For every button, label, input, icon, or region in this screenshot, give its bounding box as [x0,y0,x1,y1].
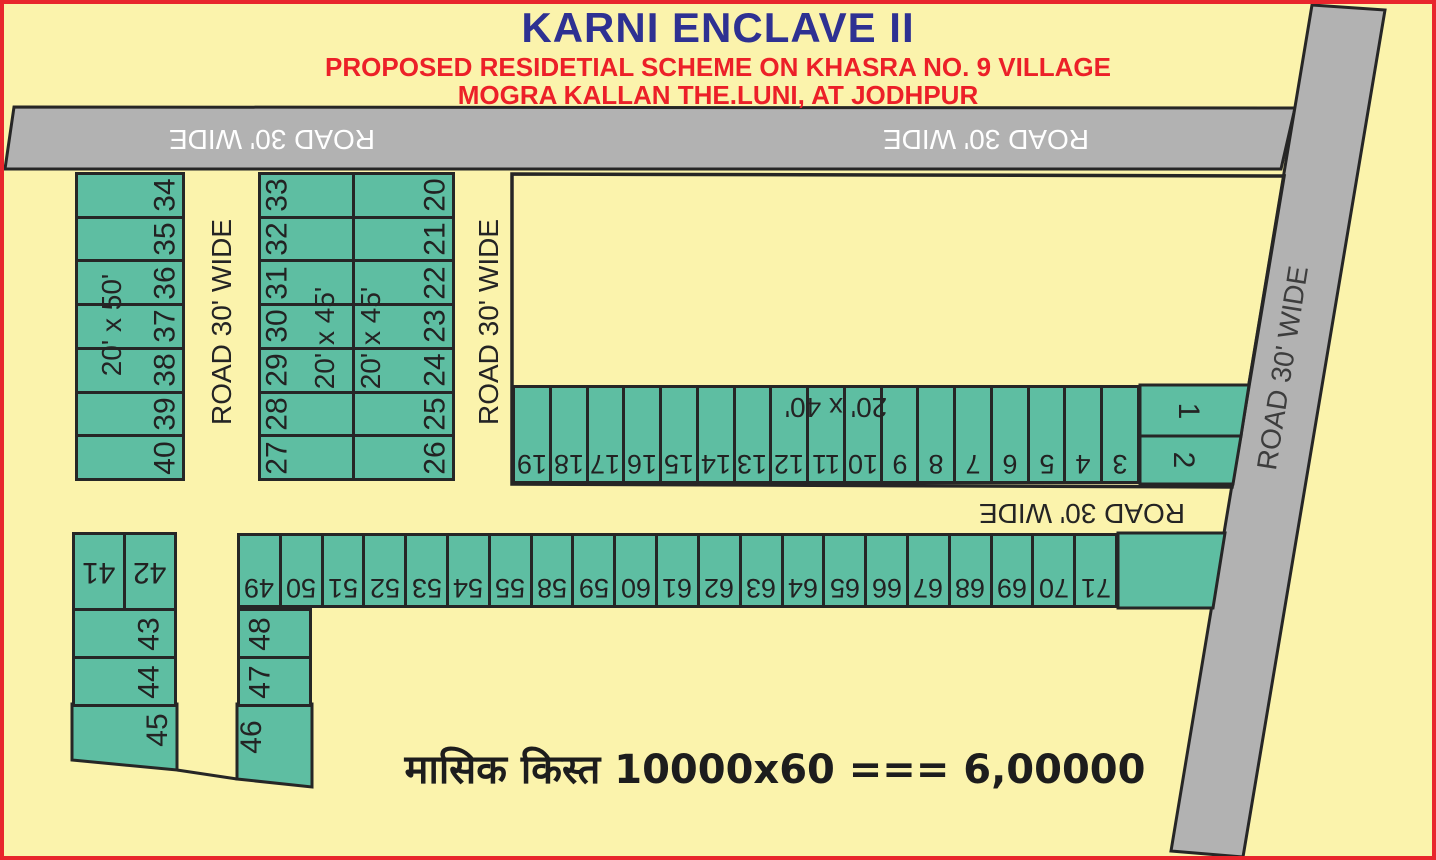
plot-cell: 36 [78,262,182,303]
plot-cell: 17 [589,388,623,481]
plot-number: 50 [286,572,316,603]
plot-number: 41 [82,555,115,589]
plot-cell: 64 [784,536,823,605]
plot-number: 9 [892,448,907,479]
plot-number: 8 [929,448,944,479]
plot-cell: 51 [324,536,363,605]
plot-number: 23 [418,310,452,343]
plot-number: 19 [517,448,547,479]
plot-cell: 65 [825,536,864,605]
plot-number: 6 [1002,448,1017,479]
plot-cell: 53 [407,536,446,605]
plot-number: 10 [848,448,878,479]
boundary-connector-line [177,770,237,779]
plot-number: 30 [261,310,295,343]
plot-cell: 52 [365,536,404,605]
plot-cell-43: 43 [72,608,177,659]
plot-cell: 41 [75,535,123,608]
plot-cell: 37 [78,306,182,347]
plot-number: 39 [148,397,182,430]
plot-number: 67 [913,572,943,603]
plot-number: 64 [788,572,818,603]
plot-cell: 67 [909,536,948,605]
road-top-left-label: ROAD 30' WIDE [162,123,382,155]
plot-number: 20 [418,179,452,212]
plot-shape-end [1118,533,1225,608]
plot-cell: 60 [616,536,655,605]
plot-number: 13 [737,448,767,479]
plot-number: 18 [554,448,584,479]
dimension-label-20x50: 20' x 50' [96,215,128,435]
plot-number: 61 [662,572,692,603]
plot-number: 35 [148,222,182,255]
road-top-right-label: ROAD 30' WIDE [876,123,1096,155]
plot-cell: 71 [1076,536,1115,605]
plot-number: 29 [261,354,295,387]
plot-number: 43 [132,617,166,650]
subtitle-line-1: PROPOSED RESIDETIAL SCHEME ON KHASRA NO.… [0,52,1436,83]
plot-cell: 4 [1066,388,1100,481]
plot-number: 71 [1081,572,1111,603]
plot-row-49-71: 49 50 51 52 53 54 55 [237,533,1118,608]
plot-cell: 68 [951,536,990,605]
plot-cell: 70 [1034,536,1073,605]
plot-cell-47: 47 [237,656,312,707]
plot-number: 70 [1039,572,1069,603]
road-middle-label: ROAD 30' WIDE [972,497,1192,529]
plot-cell: 40 [78,437,182,478]
dimension-label-20x45-right: 20' x 45' [355,228,387,448]
plot-number: 36 [148,266,182,299]
plot-cell: 59 [574,536,613,605]
plot-cell: 7 [956,388,990,481]
plot-number: 25 [418,397,452,430]
plot-cell: 62 [700,536,739,605]
plot-cell: 5 [1030,388,1064,481]
plot-number-2: 2 [1167,430,1199,490]
site-plan-canvas: KARNI ENCLAVE II PROPOSED RESIDETIAL SCH… [0,0,1436,860]
plot-cell: 20 [355,175,452,216]
plot-number: 38 [148,354,182,387]
plot-number: 51 [328,572,358,603]
plot-number: 53 [412,572,442,603]
plot-number: 21 [418,222,452,255]
plot-number: 31 [261,266,295,299]
plot-number-46: 46 [236,707,268,767]
plot-number: 28 [261,397,295,430]
plot-block-41-42: 41 42 [72,532,177,611]
plot-number: 58 [537,572,567,603]
plot-number-45: 45 [142,700,174,760]
plot-number: 42 [133,555,166,589]
plot-cell: 35 [78,219,182,260]
plot-cell: 49 [240,536,279,605]
plot-number: 49 [244,572,274,603]
installment-text: मासिक किस्त 10000x60 === 6,00000 [340,740,1210,795]
plot-number: 7 [966,448,981,479]
plot-number: 32 [261,222,295,255]
plot-cell: 34 [78,175,182,216]
plot-cell: 69 [993,536,1032,605]
plot-cell: 54 [449,536,488,605]
plot-number: 47 [244,665,278,698]
plot-number: 48 [244,617,278,650]
plot-cell: 6 [993,388,1027,481]
plot-number: 68 [955,572,985,603]
plot-cell: 66 [867,536,906,605]
plot-number: 55 [495,572,525,603]
plot-number: 14 [701,448,731,479]
plot-number: 24 [418,354,452,387]
plot-number: 59 [579,572,609,603]
page-title: KARNI ENCLAVE II [0,4,1436,52]
plot-number: 17 [590,448,620,479]
plot-number: 26 [418,441,452,474]
dimension-label-20x40: 20' x 40' [726,391,946,423]
plot-cell: 42 [126,535,174,608]
plot-cell: 19 [515,388,549,481]
plot-number: 65 [830,572,860,603]
plot-number: 33 [261,179,295,212]
plot-number: 11 [812,448,840,479]
plot-number: 5 [1039,448,1054,479]
plot-cell: 63 [742,536,781,605]
plot-number: 44 [132,665,166,698]
plot-number: 15 [664,448,694,479]
plot-cell: 16 [625,388,659,481]
subtitle-line-2: MOGRA KALLAN THE.LUNI, AT JODHPUR [0,80,1436,111]
plot-number: 27 [261,441,295,474]
dimension-label-20x45-left: 20' x 45' [309,228,341,448]
plot-cell: 61 [658,536,697,605]
plot-number: 16 [627,448,657,479]
plot-cell: 15 [662,388,696,481]
plot-block-34-40: 34 35 36 37 38 39 40 [75,172,185,481]
plot-number: 63 [746,572,776,603]
road-vertical-label-1: ROAD 30' WIDE [206,212,238,432]
road-vertical-label-2: ROAD 30' WIDE [473,212,505,432]
plot-cell: 3 [1103,388,1137,481]
plot-number: 34 [148,179,182,212]
plot-cell: 55 [491,536,530,605]
plot-cell: 33 [261,175,352,216]
plot-cell-48: 48 [237,608,312,659]
plot-number: 3 [1113,448,1128,479]
plot-number: 66 [872,572,902,603]
plot-number: 40 [148,441,182,474]
plot-cell: 58 [533,536,572,605]
plot-number: 52 [370,572,400,603]
plot-cell: 39 [78,394,182,435]
plot-cell: 38 [78,350,182,391]
plot-number: 37 [148,310,182,343]
plot-number: 4 [1076,448,1091,479]
plot-cell: 18 [552,388,586,481]
plot-number: 69 [997,572,1027,603]
plot-number: 12 [774,448,804,479]
plot-number: 62 [704,572,734,603]
plot-number: 54 [453,572,483,603]
plot-number: 60 [621,572,651,603]
plot-number: 22 [418,266,452,299]
plot-cell: 50 [282,536,321,605]
